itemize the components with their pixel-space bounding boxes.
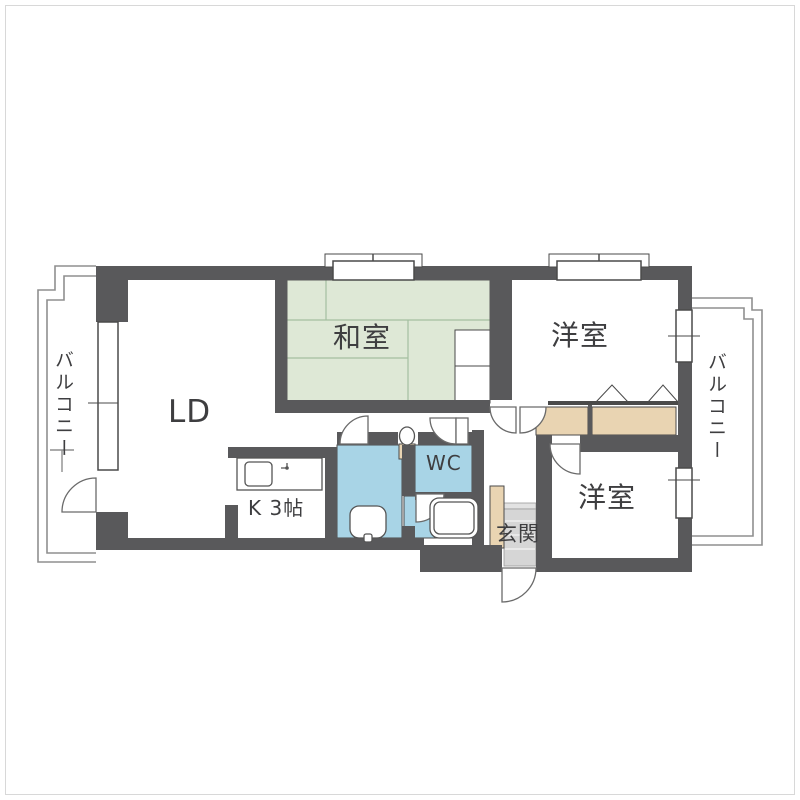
window-japanese-room bbox=[325, 254, 422, 280]
room-label-western-room-top: 洋室 bbox=[551, 322, 609, 350]
room-label-balcony-left: バルコニー bbox=[53, 350, 72, 460]
door-ld-balcony bbox=[62, 478, 96, 512]
room-label-wc: WC bbox=[426, 453, 462, 473]
folding-door-icon bbox=[596, 385, 628, 402]
window-ld-balcony bbox=[88, 322, 118, 470]
washbasin-icon bbox=[350, 506, 386, 542]
room-label-japanese-room: 和室 bbox=[333, 324, 391, 352]
window-right-balcony-bottom bbox=[668, 468, 700, 518]
kitchen-sink-icon bbox=[237, 458, 322, 490]
room-label-ld: LD bbox=[168, 397, 211, 428]
balcony-right-outline bbox=[692, 298, 762, 545]
door-washroom bbox=[340, 416, 368, 444]
closet-right bbox=[592, 407, 676, 435]
window-western-room-top bbox=[549, 254, 649, 280]
bathtub-icon bbox=[430, 498, 478, 538]
room-label-entrance: 玄関 bbox=[496, 524, 540, 545]
room-label-balcony-right: バルコニー bbox=[706, 352, 725, 462]
door-western-room-top-left bbox=[490, 407, 516, 433]
window-right-balcony-top bbox=[668, 310, 700, 362]
room-label-western-room-bottom: 洋室 bbox=[578, 484, 636, 512]
floorplan-image: LD 和室 洋室 洋室 K 3帖 WC 玄関 バルコニー バルコニー bbox=[0, 0, 800, 800]
door-entrance bbox=[502, 568, 536, 602]
room-label-kitchen: K 3帖 bbox=[248, 498, 304, 518]
floorplan-drawing bbox=[0, 0, 800, 800]
folding-door-icon bbox=[648, 385, 678, 402]
toilet-icon bbox=[400, 427, 415, 445]
door-western-room-bottom bbox=[550, 444, 580, 474]
